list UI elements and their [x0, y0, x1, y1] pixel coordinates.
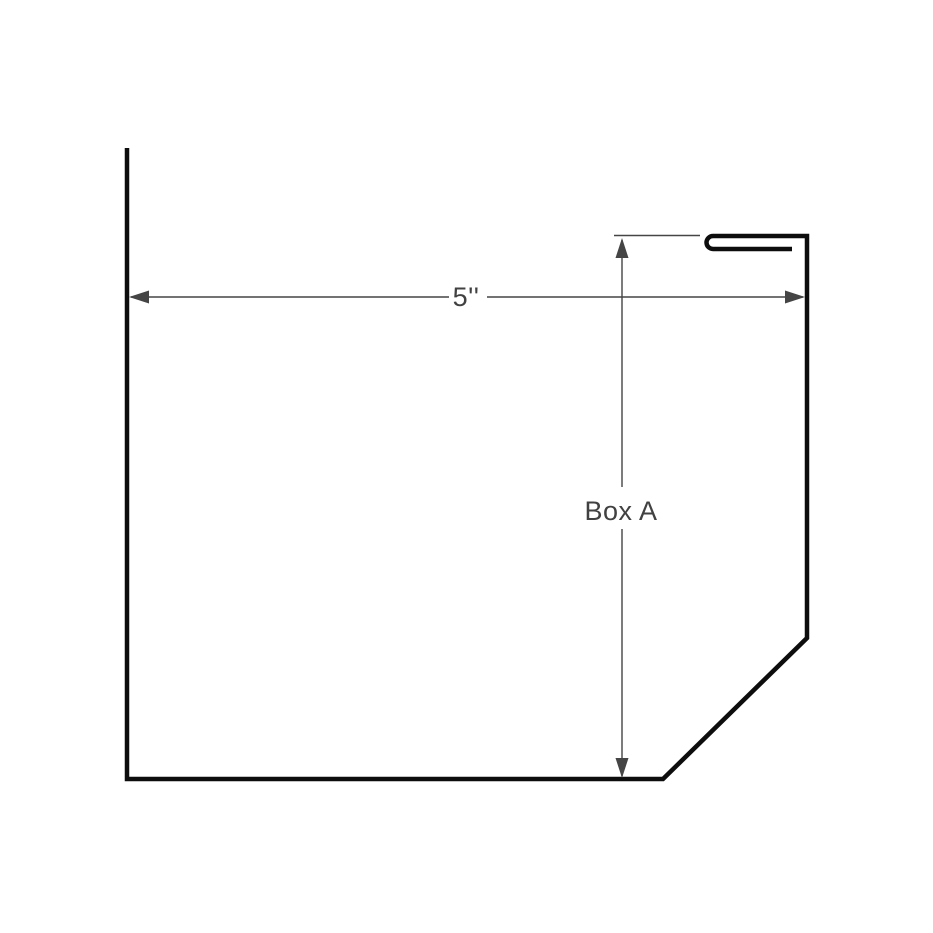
- up-arrow-icon: [616, 238, 629, 258]
- box-profile-drawing: 5'' Box A: [0, 0, 933, 933]
- width-dimension-label: 5'': [453, 282, 480, 312]
- down-arrow-icon: [616, 758, 629, 778]
- right-arrow-icon: [785, 291, 805, 304]
- box-profile-outline: [127, 148, 807, 779]
- left-arrow-icon: [129, 291, 149, 304]
- vertical-dimension: Box A: [584, 236, 700, 779]
- height-dimension-label: Box A: [584, 496, 657, 526]
- horizontal-dimension: 5'': [129, 282, 805, 312]
- technical-drawing-canvas: 5'' Box A: [0, 0, 933, 933]
